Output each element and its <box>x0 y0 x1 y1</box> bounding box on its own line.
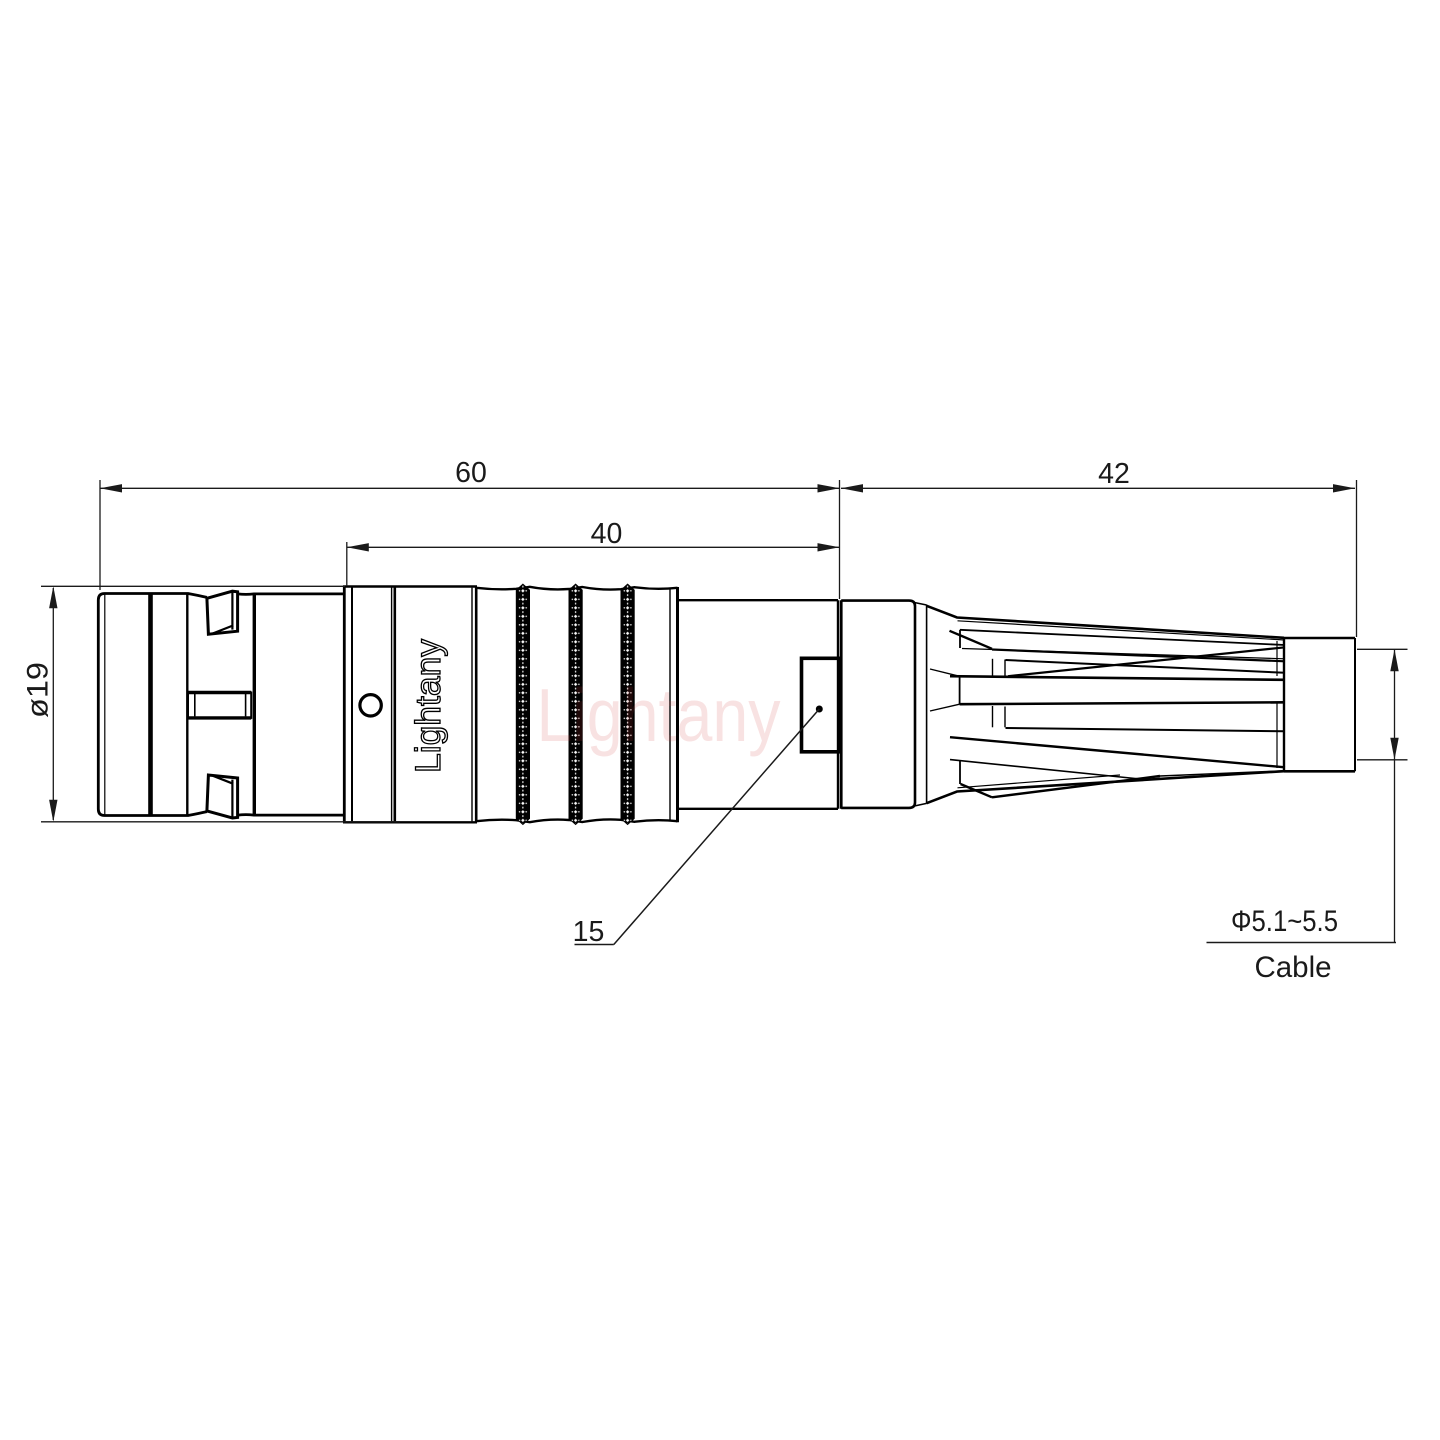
svg-text:40: 40 <box>591 518 623 550</box>
svg-text:60: 60 <box>455 457 487 489</box>
svg-text:Lightany: Lightany <box>537 673 781 757</box>
svg-text:Φ5.1~5.5: Φ5.1~5.5 <box>1231 905 1338 938</box>
svg-text:Lightany: Lightany <box>409 638 448 773</box>
svg-text:ø19: ø19 <box>22 662 55 718</box>
svg-text:42: 42 <box>1098 458 1130 490</box>
svg-text:Cable: Cable <box>1254 951 1331 984</box>
svg-text:15: 15 <box>573 916 605 948</box>
